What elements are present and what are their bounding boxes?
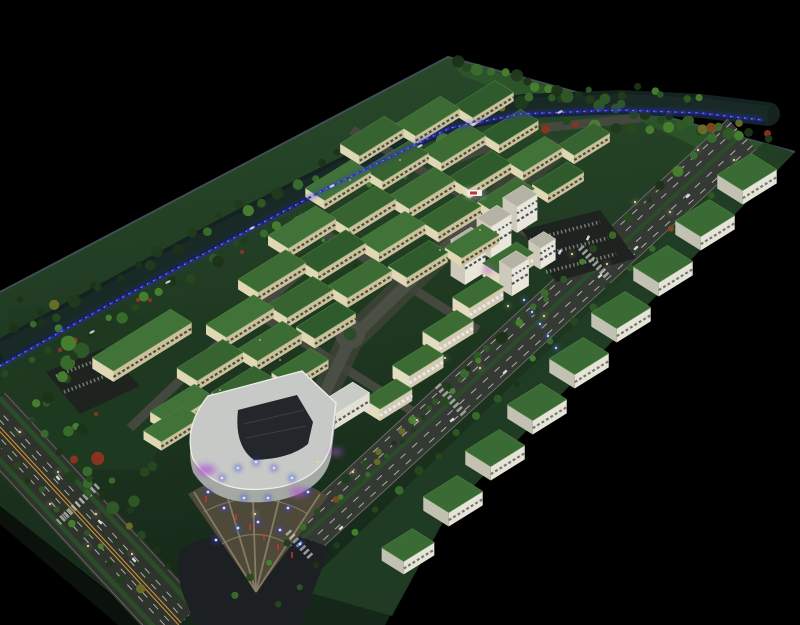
tree	[735, 119, 743, 127]
tree	[98, 543, 104, 549]
tree	[136, 584, 145, 593]
tree	[356, 478, 363, 485]
tree	[499, 332, 508, 341]
led-tree	[237, 467, 240, 470]
street-light	[606, 263, 608, 265]
purple-glow	[196, 465, 216, 475]
tree	[41, 430, 49, 438]
tree	[452, 55, 464, 67]
window-sparkle	[439, 249, 441, 251]
tree	[137, 531, 146, 540]
window-sparkle	[379, 279, 381, 281]
tree	[338, 494, 344, 500]
tree	[135, 261, 142, 268]
led-tree	[291, 477, 294, 480]
tree	[165, 563, 171, 569]
tree	[744, 128, 753, 137]
led-tree	[243, 497, 246, 500]
led-tree	[223, 507, 226, 510]
tree	[414, 466, 423, 475]
tree	[684, 95, 691, 102]
tree	[25, 477, 31, 483]
tree	[372, 507, 378, 513]
tree	[765, 135, 773, 143]
tree	[365, 472, 370, 477]
tree	[440, 397, 449, 406]
tree	[624, 213, 633, 222]
tree	[544, 85, 552, 93]
tree	[17, 296, 24, 303]
tree	[655, 181, 665, 191]
street-light	[444, 357, 446, 359]
tree	[186, 274, 196, 284]
tree	[246, 574, 254, 582]
window-sparkle	[399, 159, 401, 161]
tree	[472, 412, 480, 420]
tree	[516, 319, 524, 327]
tree	[212, 256, 223, 267]
tree	[99, 492, 107, 500]
tree	[29, 417, 35, 423]
tree	[29, 357, 35, 363]
tree	[657, 91, 664, 98]
red-banner	[291, 552, 293, 558]
led-tree	[257, 521, 260, 524]
tree	[646, 125, 655, 134]
tree	[543, 297, 549, 303]
tree	[374, 459, 381, 466]
tree	[132, 304, 139, 311]
sign-logo	[470, 192, 477, 195]
tree	[400, 439, 405, 444]
tree	[9, 323, 19, 333]
tree	[293, 179, 304, 190]
tree	[83, 430, 89, 436]
tree	[436, 453, 443, 460]
tree	[61, 336, 76, 351]
tree	[333, 542, 340, 549]
window-sparkle	[259, 339, 261, 341]
led-tree	[273, 467, 276, 470]
window-sparkle	[419, 204, 421, 206]
street-light	[87, 545, 89, 547]
tree	[313, 562, 320, 569]
tree	[154, 547, 160, 553]
red-banner	[249, 524, 251, 530]
blue-pole-light	[531, 311, 533, 313]
tree	[457, 377, 462, 382]
tree	[151, 246, 163, 258]
tree	[70, 352, 78, 360]
tree	[140, 467, 150, 477]
tree	[682, 116, 693, 127]
tree	[91, 452, 104, 465]
led-tree	[237, 527, 240, 530]
tree	[663, 122, 674, 133]
flower-patch	[136, 298, 140, 302]
tree	[243, 205, 254, 216]
street-light	[571, 253, 573, 255]
tree	[16, 370, 22, 376]
tree	[487, 68, 495, 76]
tree	[353, 263, 357, 267]
tree	[560, 276, 567, 283]
street-light	[317, 461, 319, 463]
led-tree	[255, 461, 258, 464]
tree	[530, 82, 540, 92]
purple-glow	[483, 267, 493, 273]
tree	[68, 520, 76, 528]
tree	[318, 159, 326, 167]
tree	[361, 460, 368, 467]
tree	[605, 283, 613, 291]
street-light	[634, 201, 636, 203]
tree	[502, 68, 510, 76]
tree	[511, 69, 523, 81]
tree	[668, 226, 674, 232]
tree	[708, 192, 715, 199]
tree	[155, 288, 163, 296]
led-tree	[299, 543, 302, 546]
tree	[173, 244, 184, 255]
tree	[266, 560, 272, 566]
tree	[541, 125, 550, 134]
tree	[672, 166, 683, 177]
tree	[57, 371, 68, 382]
tree	[453, 429, 460, 436]
led-tree	[215, 539, 218, 542]
window-sparkle	[319, 299, 321, 301]
tree	[82, 467, 92, 477]
tree	[611, 123, 622, 134]
tree	[116, 312, 127, 323]
led-tree	[221, 477, 224, 480]
tree	[257, 199, 266, 208]
tree	[68, 295, 81, 308]
window-sparkle	[479, 229, 481, 231]
tree	[657, 116, 665, 124]
industrial-park-scale-model	[0, 0, 800, 625]
tree	[618, 91, 627, 100]
tree	[707, 133, 717, 143]
blue-pole-light	[523, 299, 525, 301]
tree	[275, 601, 282, 608]
led-tree	[279, 529, 282, 532]
flower-patch	[240, 250, 244, 254]
tree	[65, 472, 77, 484]
tree	[586, 87, 592, 93]
window-sparkle	[359, 229, 361, 231]
tree	[723, 128, 735, 140]
tree	[56, 448, 63, 455]
tree	[375, 449, 382, 456]
tree	[572, 122, 578, 128]
flower-patch	[58, 348, 62, 352]
street-light	[479, 367, 481, 369]
tree	[52, 314, 60, 322]
tree	[148, 462, 158, 472]
tree	[49, 300, 59, 310]
tree	[38, 309, 45, 316]
tree	[547, 338, 553, 344]
tree	[70, 456, 78, 464]
tree	[649, 246, 655, 252]
street-light	[669, 211, 671, 213]
led-tree	[267, 497, 270, 500]
tree	[432, 399, 438, 405]
tree	[541, 289, 549, 297]
street-light	[19, 431, 21, 433]
led-tree	[307, 491, 310, 494]
tree	[420, 415, 426, 421]
tree	[575, 91, 583, 99]
window-sparkle	[349, 179, 351, 181]
tree	[314, 509, 320, 515]
tree	[241, 236, 249, 244]
tree	[30, 321, 37, 328]
tree	[525, 93, 534, 102]
tree	[450, 388, 456, 394]
red-banner	[263, 534, 265, 540]
tree	[106, 561, 113, 568]
blue-pole-light	[539, 323, 541, 325]
street-light	[733, 159, 735, 161]
flower-patch	[148, 298, 152, 302]
tree	[44, 346, 51, 353]
street-light	[57, 471, 59, 473]
tree	[690, 152, 698, 160]
tree	[271, 187, 283, 199]
tree	[39, 486, 45, 492]
tree	[734, 131, 744, 141]
tree	[579, 259, 585, 265]
tree	[634, 83, 641, 90]
tree	[321, 238, 325, 242]
red-banner	[205, 496, 207, 502]
tree	[514, 381, 520, 387]
flower-patch	[94, 412, 98, 416]
tree	[391, 441, 397, 447]
tree	[352, 529, 359, 536]
tree	[299, 523, 306, 530]
tree	[43, 392, 54, 403]
tree	[530, 355, 536, 361]
tree	[395, 486, 404, 495]
street-light	[507, 305, 509, 307]
tree	[551, 85, 562, 96]
tree	[54, 506, 60, 512]
tree	[14, 462, 21, 469]
tree	[159, 473, 166, 480]
red-banner	[277, 544, 279, 550]
tree	[523, 77, 531, 85]
street-light	[131, 553, 133, 555]
tree	[139, 292, 149, 302]
street-light	[416, 419, 418, 421]
tree	[609, 231, 617, 239]
tree	[589, 245, 597, 253]
tree	[465, 366, 470, 371]
tree	[471, 64, 483, 76]
tree	[203, 227, 212, 236]
tree	[110, 503, 118, 511]
tree	[284, 539, 291, 546]
window-sparkle	[299, 249, 301, 251]
tree	[145, 260, 156, 271]
street-light	[697, 149, 699, 151]
tree	[37, 318, 45, 326]
tree	[233, 200, 243, 210]
tree	[646, 197, 653, 204]
street-light	[95, 513, 97, 515]
tree	[128, 496, 139, 507]
led-tree	[287, 507, 290, 510]
tree	[126, 522, 133, 529]
tree	[1, 370, 8, 377]
tree	[106, 315, 112, 321]
tree	[84, 488, 92, 496]
tree	[334, 149, 341, 156]
tree	[570, 317, 579, 326]
blue-pole-light	[555, 347, 557, 349]
street-light	[352, 471, 354, 473]
tree	[617, 100, 625, 108]
tree	[462, 63, 470, 71]
tree	[63, 426, 74, 437]
tree	[411, 428, 416, 433]
tree	[341, 474, 351, 484]
tree	[475, 358, 481, 364]
tree	[696, 94, 703, 101]
tree	[706, 123, 716, 133]
tree	[118, 576, 126, 584]
tree	[562, 116, 571, 125]
tree	[398, 428, 405, 435]
street-light	[543, 315, 545, 317]
tree	[84, 530, 90, 536]
tree	[585, 95, 594, 104]
tree	[483, 345, 490, 352]
tree	[233, 241, 239, 247]
window-sparkle	[279, 359, 281, 361]
tree	[490, 345, 495, 350]
model-photo	[0, 0, 800, 625]
street-light	[49, 503, 51, 505]
tree	[427, 405, 432, 410]
blue-pole-light	[547, 335, 549, 337]
tree	[494, 395, 502, 403]
tree	[627, 264, 634, 271]
window-sparkle	[219, 389, 221, 391]
tree	[384, 454, 389, 459]
tree	[86, 475, 93, 482]
tree	[530, 303, 537, 310]
purple-glow	[330, 449, 342, 455]
tree	[297, 584, 303, 590]
tree	[260, 230, 268, 238]
tree	[626, 123, 636, 133]
street-light	[380, 409, 382, 411]
tree	[518, 310, 526, 318]
tree	[216, 212, 222, 218]
red-banner	[235, 514, 237, 520]
tree	[109, 477, 116, 484]
tree	[187, 228, 197, 238]
tree	[94, 284, 102, 292]
tree	[32, 399, 40, 407]
tree	[231, 592, 238, 599]
tree	[698, 124, 708, 134]
tree	[117, 275, 124, 282]
street-light	[254, 513, 256, 515]
tree	[127, 506, 134, 513]
tree	[561, 90, 574, 103]
led-tree	[207, 491, 210, 494]
